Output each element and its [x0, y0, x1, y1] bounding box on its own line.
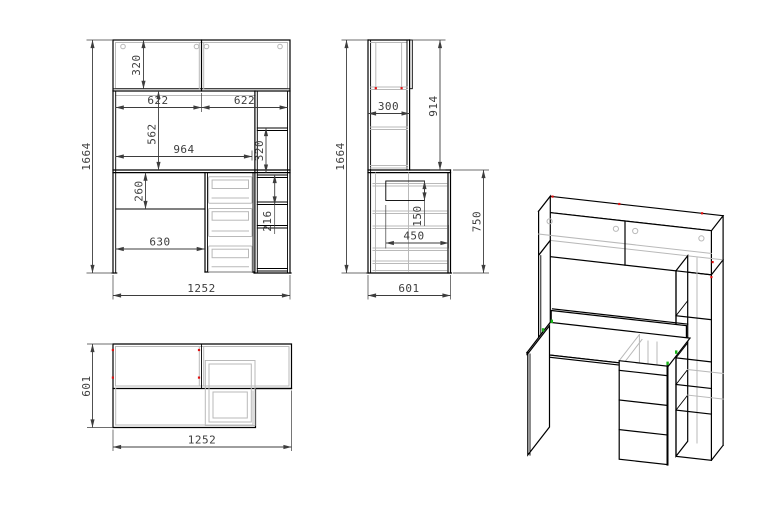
- dim-top-width: 1252: [188, 434, 217, 447]
- dim-front-door-left: 622: [147, 94, 168, 107]
- dim-side-drawer-height: 150: [411, 205, 424, 226]
- drawer-front-3: [209, 246, 252, 272]
- marker-red: [401, 87, 403, 89]
- marker-red: [198, 349, 200, 351]
- dim-front-under-desk: 260: [133, 180, 146, 201]
- dim-side-desk-height: 750: [471, 211, 484, 232]
- dim-front-cabinet-height: 320: [130, 54, 143, 75]
- dim-side-drawer-depth: 450: [403, 230, 424, 243]
- front-view: 1664 320 622 622 562 964 320 260 216 630: [80, 40, 291, 300]
- marker-red: [198, 377, 200, 379]
- furniture-blueprint: 1664 320 622 622 562 964 320 260 216 630: [0, 0, 777, 514]
- iso-left-panel: [528, 326, 550, 456]
- front-drawers: [209, 177, 252, 272]
- dim-front-total-height: 1664: [80, 142, 93, 171]
- marker-red: [112, 349, 114, 351]
- technical-drawing-page: 1664 320 622 622 562 964 320 260 216 630: [0, 0, 777, 514]
- hinge-mark: [194, 44, 199, 49]
- drawer-front-2: [209, 209, 252, 237]
- hinge-mark: [121, 44, 126, 49]
- marker-green: [542, 328, 544, 331]
- marker-red: [551, 196, 553, 198]
- marker-green: [675, 350, 677, 353]
- marker-red: [112, 377, 114, 379]
- dim-front-total-width: 1252: [187, 282, 216, 295]
- marker-green: [666, 362, 668, 365]
- dim-front-left-opening: 630: [149, 236, 170, 249]
- dim-side-total-height: 1664: [334, 142, 347, 171]
- dim-front-door-right: 622: [234, 94, 255, 107]
- dim-front-niche-height: 562: [146, 123, 159, 144]
- iso-view: [527, 196, 723, 465]
- top-view: 601 1252: [80, 344, 292, 451]
- side-cabinet-door-edge: [410, 40, 413, 89]
- marker-red: [712, 261, 714, 263]
- dim-front-shelf-lower: 216: [261, 210, 274, 231]
- dim-side-top-depth: 300: [378, 100, 399, 113]
- side-view: 1664 300 914 150 450 750 601: [334, 40, 489, 300]
- marker-red: [701, 212, 703, 214]
- drawer-front-1: [209, 177, 252, 204]
- hinge-mark: [278, 44, 283, 49]
- marker-red: [710, 276, 712, 278]
- top-dimensions: 601 1252: [80, 344, 292, 451]
- marker-red: [375, 87, 377, 89]
- hinge-mark: [204, 44, 209, 49]
- marker-red: [618, 203, 620, 205]
- dim-top-depth: 601: [80, 375, 93, 396]
- marker-green: [551, 320, 553, 323]
- dim-front-shelf-upper: 320: [253, 140, 266, 161]
- iso-right-column: [676, 256, 723, 460]
- dim-side-total-depth: 601: [398, 282, 419, 295]
- dim-front-niche-width: 964: [173, 143, 194, 156]
- iso-wall-cabinet: [539, 196, 724, 275]
- iso-left-support: [539, 240, 551, 337]
- dim-side-upper-height: 914: [427, 95, 440, 116]
